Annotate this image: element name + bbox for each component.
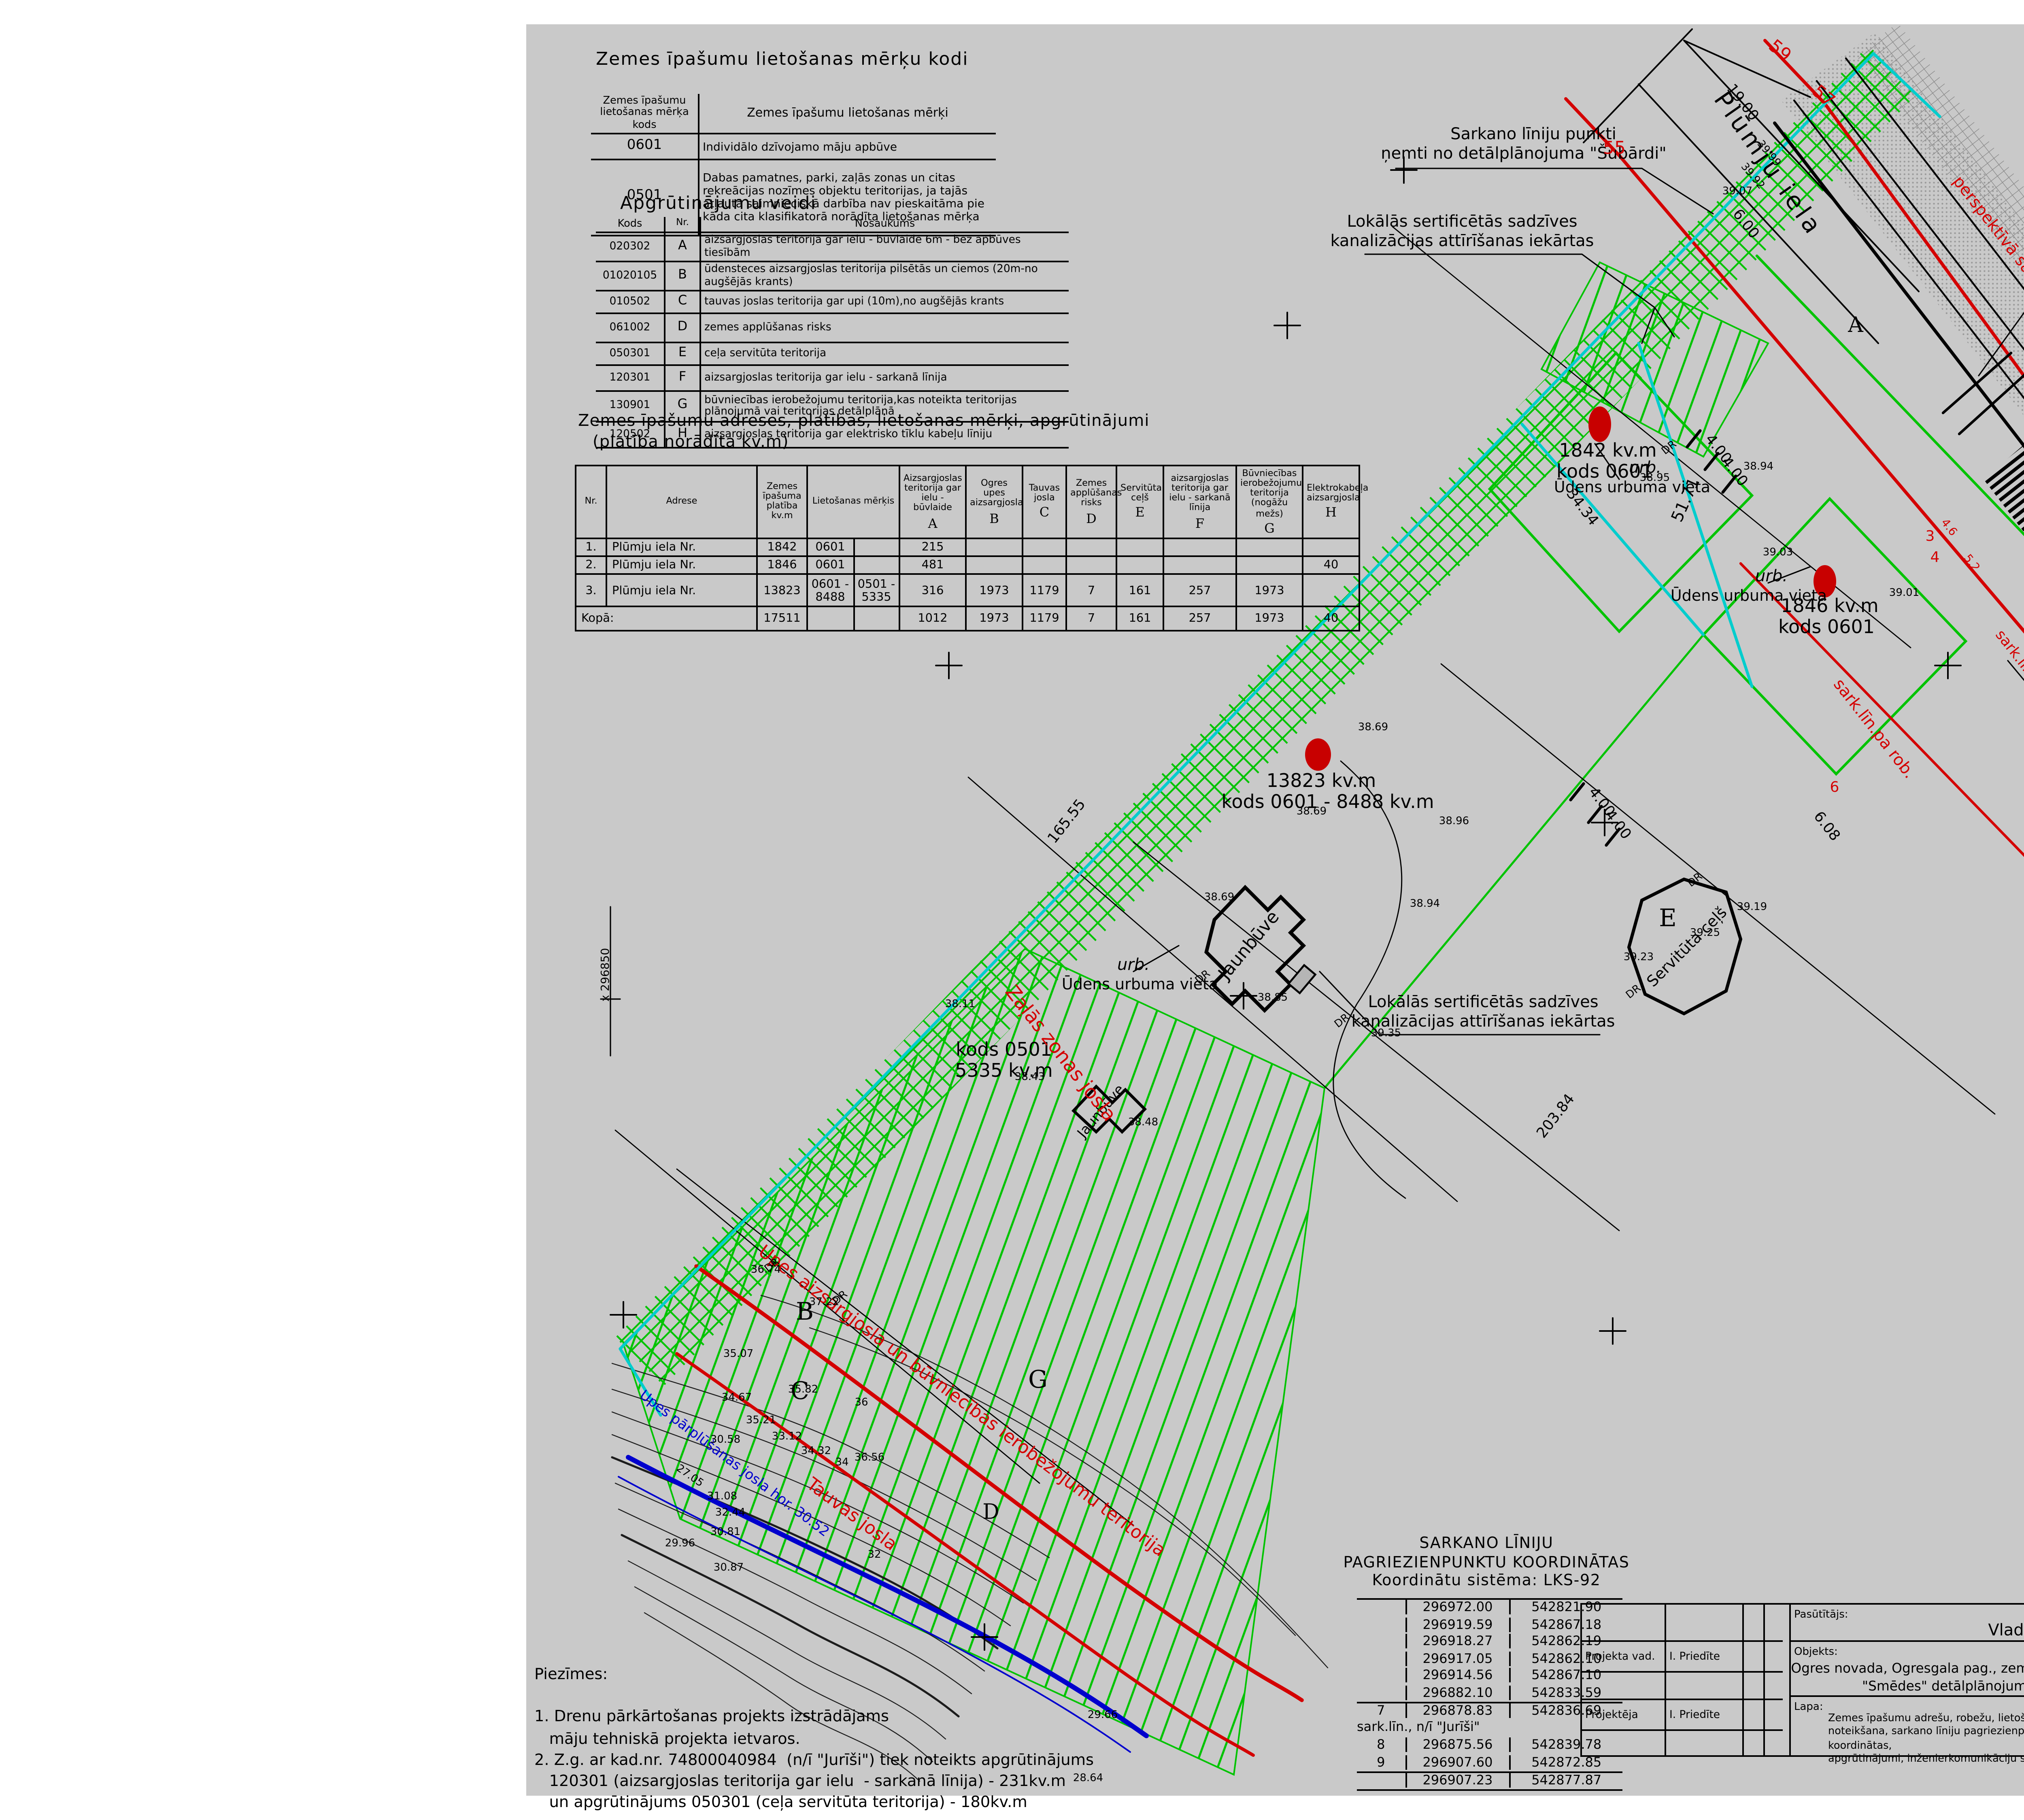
usage-codes-table: Zemes īpašumu lietošanas mērķa kodsZemes… bbox=[591, 94, 996, 236]
role-name: I. Priedīte bbox=[1666, 1642, 1744, 1673]
map-label: 59 bbox=[1765, 35, 1795, 66]
addresses-table: Nr.AdreseZemes īpašuma platība kv.mLieto… bbox=[575, 465, 1360, 631]
object-line-1: Ogres novada, Ogresgala pag., zemes īpaš… bbox=[1789, 1660, 2024, 1678]
table-row: 020302Aaizsargjoslas teritorija gar ielu… bbox=[596, 233, 1069, 262]
elevation-label: 39.19 bbox=[1737, 901, 1767, 913]
elevation-label: 38.85 bbox=[1258, 991, 1288, 1004]
elevation-label: 38.11 bbox=[945, 998, 975, 1010]
coords-title-2: PAGRIEZIENPUNKTU KOORDINĀTAS bbox=[1328, 1554, 1645, 1572]
usage-codes-title: Zemes īpašumu lietošanas mērķu kodi bbox=[596, 49, 968, 70]
elevation-label: 38.43 bbox=[1015, 1071, 1045, 1083]
notes: Piezīmes: 1. Drenu pārkārtošanas projekt… bbox=[534, 1665, 1094, 1814]
map-label: urb. bbox=[1755, 567, 1788, 585]
elevation-label: 39.23 bbox=[1624, 951, 1654, 963]
map-label: 6 bbox=[1830, 779, 1839, 795]
desc-line: Zemes īpašumu adrešu, robežu, lietošanas… bbox=[1828, 1712, 2024, 1725]
table-row: KodsNr.Nosaukums bbox=[596, 217, 1069, 233]
dimension-label: 6.08 bbox=[1810, 808, 1843, 844]
elevation-label: 35.82 bbox=[788, 1383, 818, 1395]
borehole-marker bbox=[1305, 738, 1331, 771]
client-name: Vladislavs Tikāns bbox=[1789, 1622, 2024, 1640]
map-label: Servitūta ceļš bbox=[1643, 903, 1730, 990]
map-label: Lokālās sertificētās sadzīves bbox=[1347, 212, 1577, 231]
map-label: 5.2 bbox=[1961, 551, 1983, 574]
elevation-label: 38.94 bbox=[1410, 897, 1440, 910]
desc-line: noteikšana, sarkano līniju pagriezienpun… bbox=[1828, 1725, 2024, 1752]
dimension-label: 203.84 bbox=[1533, 1091, 1578, 1142]
map-label: A bbox=[1848, 313, 1864, 337]
addresses-title-1: Zemes īpašumu adreses, platības, lietoša… bbox=[578, 413, 1150, 431]
map-label: kanalizācijas attīrīšanas iekārtas bbox=[1330, 232, 1594, 250]
map-label: 3 bbox=[1926, 528, 1935, 544]
elevation-label: 38.48 bbox=[1128, 1116, 1158, 1128]
addresses-title-2: (platība norādīta kv.m) bbox=[593, 434, 789, 452]
map-label: 1846 kv.m bbox=[1781, 595, 1878, 617]
title-block: Projekta vad. I. Priedīte Projektēja I. … bbox=[1580, 1603, 2024, 1757]
coords-title-1: SARKANO LĪNIJU bbox=[1328, 1535, 1645, 1554]
elevation-label: 32 bbox=[867, 1548, 881, 1561]
map-label: Jaunbūve bbox=[1214, 907, 1284, 984]
elevation-label: 36 bbox=[855, 1396, 868, 1408]
elevation-label: 29.96 bbox=[665, 1537, 695, 1549]
elevation-label: 39.35 bbox=[1371, 1027, 1401, 1039]
elevation-label: 32.44 bbox=[715, 1506, 745, 1518]
coords-title-3: Koordinātu sistēma: LKS-92 bbox=[1328, 1573, 1645, 1591]
dimension-label: 165.55 bbox=[1044, 796, 1089, 847]
elevation-label: 34 bbox=[835, 1456, 848, 1468]
table-row: Nr.AdreseZemes īpašuma platība kv.mLieto… bbox=[576, 466, 1359, 538]
map-label: kods 0601 - 8488 kv.m bbox=[1221, 791, 1434, 812]
table-row: 120301Faizsargjoslas teritorija gar ielu… bbox=[596, 365, 1069, 391]
map-label: D bbox=[982, 1500, 999, 1524]
elevation-label: 30.58 bbox=[710, 1433, 740, 1446]
table-row: 1.Plūmju iela Nr.18420601215 bbox=[576, 538, 1359, 556]
encumbrances-title: Apgrūtinājumu veidi bbox=[620, 193, 816, 214]
client-label: Pasūtītājs: bbox=[1794, 1608, 1848, 1621]
elevation-label: 34.67 bbox=[722, 1391, 752, 1403]
elevation-label: 35.21 bbox=[746, 1414, 776, 1426]
object-line-2: "Smēdes" detālplānojums bbox=[1789, 1678, 2024, 1695]
elevation-label: 35.07 bbox=[723, 1348, 753, 1360]
elevation-label: 38.69 bbox=[1297, 805, 1327, 817]
role-label: Projekta vad. bbox=[1582, 1642, 1666, 1673]
elevation-label: 30.81 bbox=[710, 1526, 740, 1538]
borehole-marker bbox=[1588, 406, 1611, 442]
desc-line: apgrūtinājumi, inženierkomunikāciju shēm… bbox=[1828, 1752, 2024, 1765]
map-label: kods 0601 bbox=[1556, 460, 1653, 482]
elevation-label: 38.95 bbox=[1640, 472, 1670, 484]
map-label: 13823 kv.m bbox=[1267, 770, 1376, 791]
elevation-label: 38.69 bbox=[1204, 891, 1234, 903]
elevation-label: 38.69 bbox=[1358, 721, 1388, 733]
map-label: 4 bbox=[1930, 549, 1940, 566]
table-row: Zemes īpašumu lietošanas mērķa kodsZemes… bbox=[591, 94, 996, 134]
table-row: 050301Eceļa servitūta teritorija bbox=[596, 342, 1069, 365]
elevation-label: 38.94 bbox=[1743, 460, 1773, 472]
sheet-description: Lapa: Zemes īpašumu adrešu, robežu, liet… bbox=[1789, 1697, 2024, 1766]
role-name: I. Priedīte bbox=[1666, 1700, 1744, 1731]
elevation-label: 38.96 bbox=[1439, 815, 1469, 827]
map-label: urb. bbox=[1117, 955, 1150, 974]
table-row: 010502Ctauvas joslas teritorija gar upi … bbox=[596, 291, 1069, 313]
map-label: G bbox=[1028, 1365, 1048, 1394]
object-cell: Objekts: Ogres novada, Ogresgala pag., z… bbox=[1789, 1642, 2024, 1696]
role-label: Projektēja bbox=[1582, 1700, 1666, 1731]
elevation-label: 39.01 bbox=[1889, 587, 1919, 599]
map-label: 55 bbox=[1603, 138, 1626, 158]
map-label: Sarkano līniju punkti bbox=[1450, 125, 1616, 143]
client-row: Pasūtītājs: Vladislavs Tikāns bbox=[1789, 1605, 2024, 1642]
table-row: 01020105Būdensteces aizsargjoslas terito… bbox=[596, 262, 1069, 291]
signature-grid: Projekta vad. I. Priedīte Projektēja I. … bbox=[1582, 1605, 1791, 1755]
drain-label: DR bbox=[1685, 870, 1705, 889]
elevation-label: 39.07 bbox=[1722, 185, 1752, 197]
table-row: 2.Plūmju iela Nr.1846060148140 bbox=[576, 556, 1359, 574]
elevation-label: 34.32 bbox=[801, 1445, 831, 1457]
elevation-label: 39.03 bbox=[1763, 546, 1793, 558]
sheet-desc-label: Lapa: bbox=[1794, 1701, 1823, 1714]
elevation-label: 33.12 bbox=[772, 1430, 802, 1442]
table-row: 061002Dzemes applūšanas risks bbox=[596, 313, 1069, 342]
map-label: kods 0601 bbox=[1778, 616, 1875, 638]
elevation-label: 36.56 bbox=[855, 1451, 884, 1463]
map-label: Lokālās sertificētās sadzīves bbox=[1368, 993, 1598, 1011]
screenshot-root: Sarkano līniju punktiņemti no detālplāno… bbox=[0, 0, 2024, 1820]
elevation-label: 39.25 bbox=[1690, 927, 1720, 939]
table-row: 0601Individālo dzīvojamo māju apbūve bbox=[591, 134, 996, 159]
elevation-label: 31.08 bbox=[707, 1490, 737, 1502]
map-label: 1842 kv.m bbox=[1559, 439, 1656, 461]
elevation-label: 30.87 bbox=[714, 1561, 744, 1573]
table-row: Kopā:175111012197311797161257197340 bbox=[576, 606, 1359, 631]
map-label: E bbox=[1659, 904, 1677, 932]
map-label: x 296850 bbox=[598, 948, 612, 1001]
object-label: Objekts: bbox=[1794, 1645, 1838, 1658]
table-row: 296907.23542877.87 bbox=[1357, 1771, 1622, 1790]
table-row: 3.Plūmju iela Nr.138230601 - 84880501 - … bbox=[576, 574, 1359, 606]
